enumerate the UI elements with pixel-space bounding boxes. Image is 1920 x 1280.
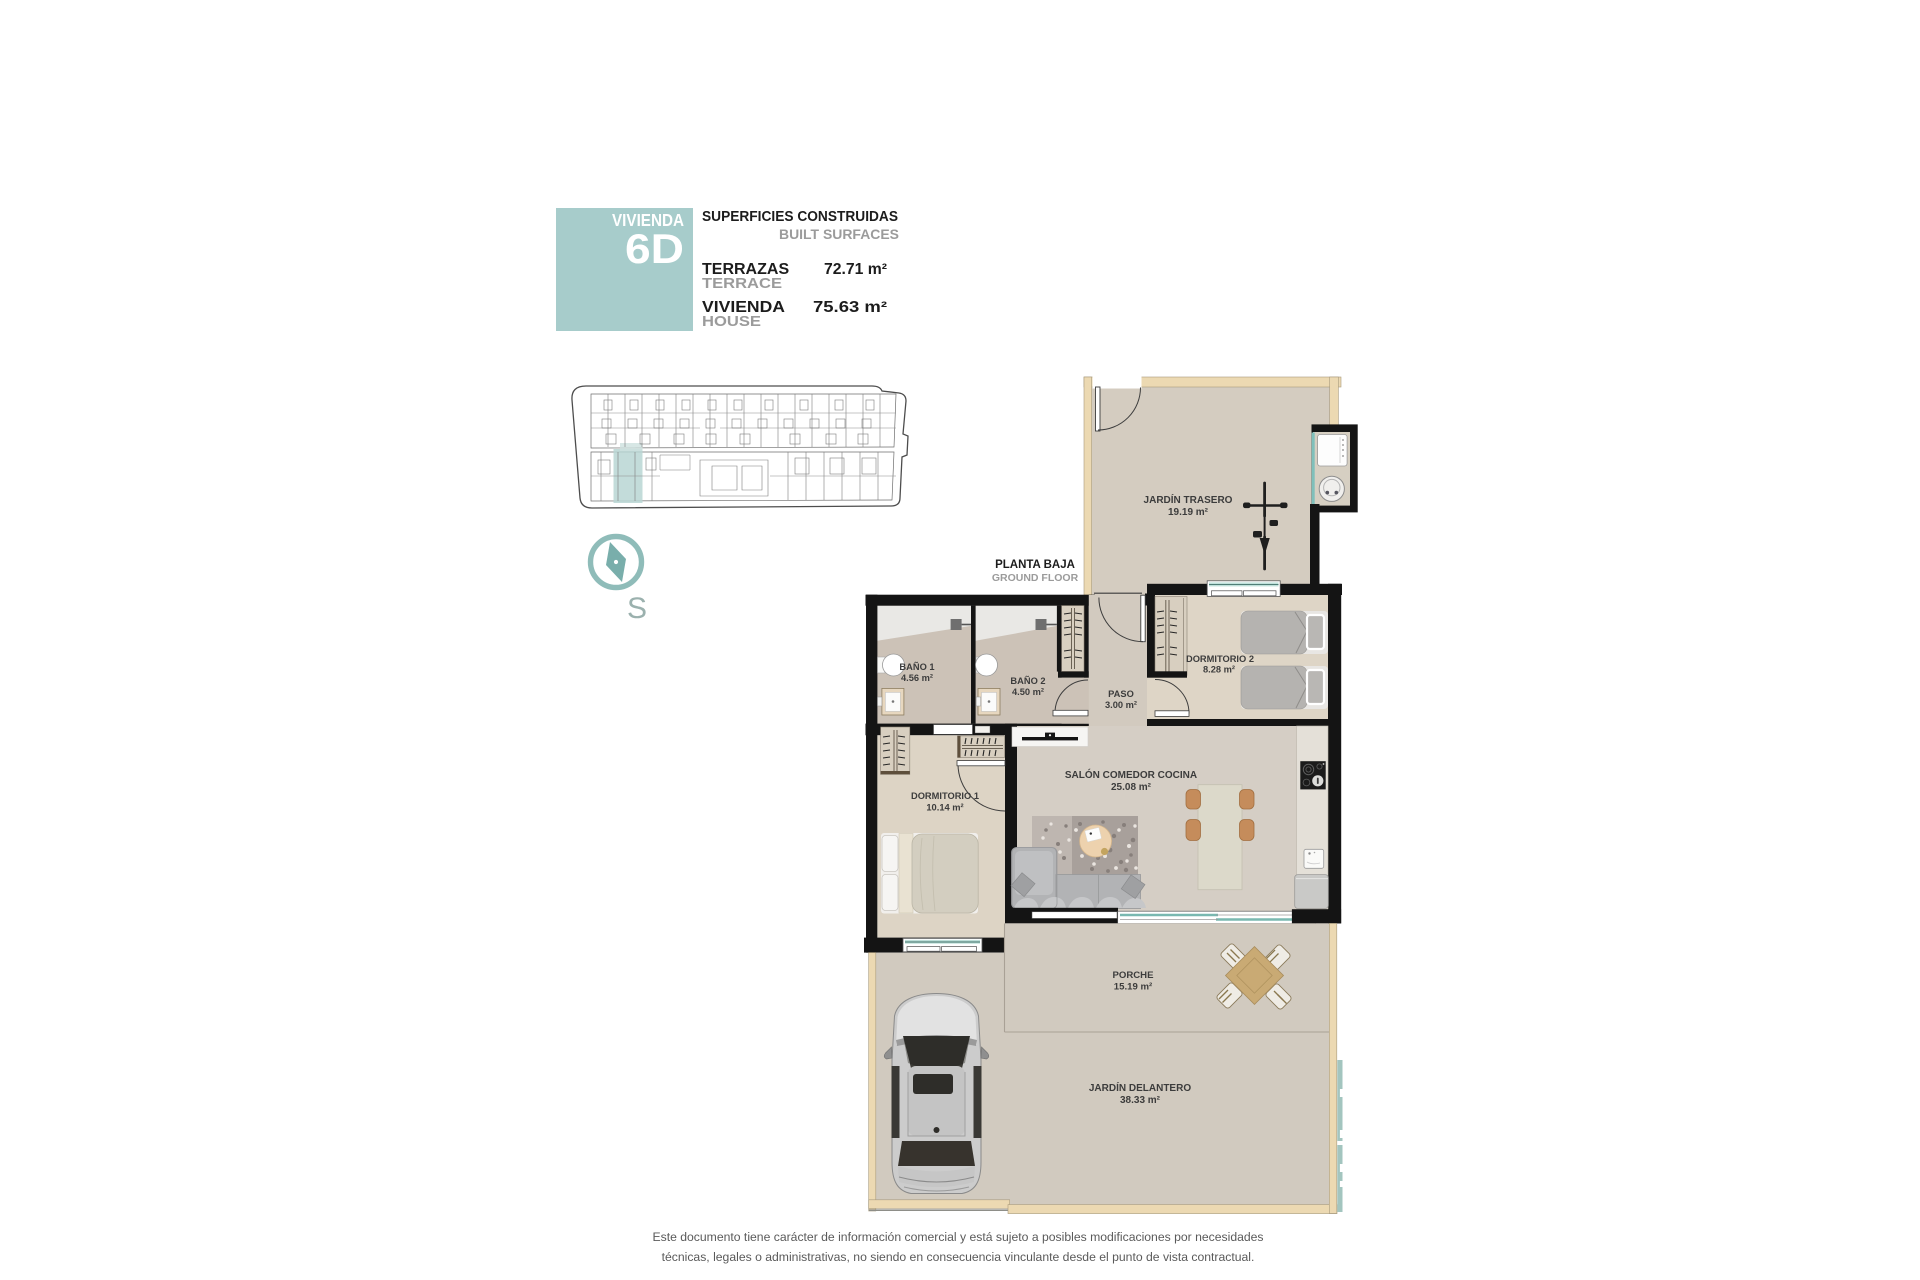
svg-text:19.19 m²: 19.19 m² [1168, 507, 1209, 518]
svg-text:Este documento tiene carácter: Este documento tiene carácter de informa… [652, 1230, 1263, 1244]
svg-text:15.19 m²: 15.19 m² [1114, 982, 1152, 993]
svg-text:4.50 m²: 4.50 m² [1012, 687, 1044, 697]
svg-text:técnicas, legales o administra: técnicas, legales o administrativas, no … [662, 1250, 1255, 1264]
svg-text:DORMITORIO 1: DORMITORIO 1 [911, 791, 979, 801]
svg-text:8.28 m²: 8.28 m² [1203, 665, 1235, 675]
svg-text:JARDÍN DELANTERO: JARDÍN DELANTERO [1089, 1081, 1191, 1094]
svg-text:SALÓN COMEDOR COCINA: SALÓN COMEDOR COCINA [1065, 768, 1197, 781]
svg-text:TERRACE: TERRACE [702, 275, 782, 292]
svg-text:BUILT SURFACES: BUILT SURFACES [779, 227, 899, 242]
svg-text:PASO: PASO [1108, 689, 1134, 699]
svg-text:4.56 m²: 4.56 m² [901, 673, 933, 683]
svg-text:PORCHE: PORCHE [1112, 970, 1154, 981]
svg-text:10.14 m²: 10.14 m² [926, 803, 963, 813]
svg-text:JARDÍN TRASERO: JARDÍN TRASERO [1144, 493, 1233, 506]
svg-text:75.63 m²: 75.63 m² [813, 299, 887, 316]
svg-text:DORMITORIO 2: DORMITORIO 2 [1186, 654, 1254, 664]
svg-text:S: S [627, 592, 647, 625]
svg-text:6D: 6D [625, 225, 684, 272]
svg-text:25.08 m²: 25.08 m² [1111, 782, 1152, 793]
svg-text:PLANTA BAJA: PLANTA BAJA [995, 559, 1075, 571]
svg-text:SUPERFICIES CONSTRUIDAS: SUPERFICIES CONSTRUIDAS [702, 209, 898, 225]
svg-text:BAÑO 1: BAÑO 1 [899, 662, 934, 672]
svg-text:BAÑO 2: BAÑO 2 [1010, 676, 1045, 686]
svg-text:GROUND FLOOR: GROUND FLOOR [992, 572, 1079, 584]
svg-text:3.00 m²: 3.00 m² [1105, 700, 1137, 710]
svg-text:38.33 m²: 38.33 m² [1120, 1095, 1161, 1106]
svg-text:HOUSE: HOUSE [702, 313, 761, 330]
svg-text:72.71 m²: 72.71 m² [824, 261, 887, 278]
